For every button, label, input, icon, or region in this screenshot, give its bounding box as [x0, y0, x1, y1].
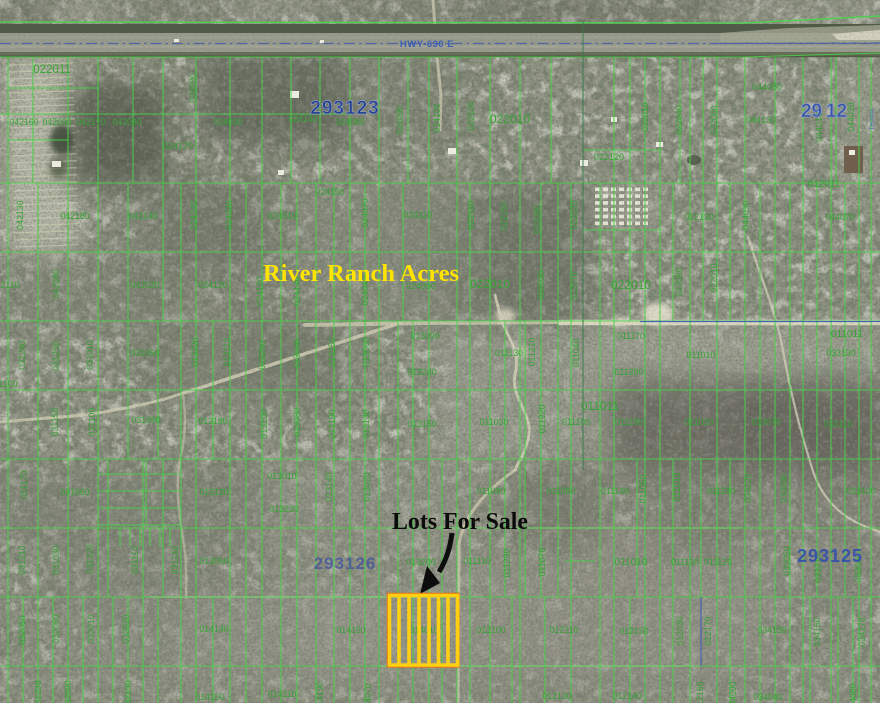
svg-text:011050: 011050: [638, 475, 648, 504]
svg-text:033110: 033110: [824, 419, 853, 429]
svg-text:034090: 034090: [728, 681, 738, 703]
svg-text:031210: 031210: [17, 545, 27, 574]
svg-text:022100: 022100: [466, 101, 476, 130]
svg-text:011010: 011010: [672, 473, 682, 502]
svg-text:HWY-630 E: HWY-630 E: [400, 39, 454, 50]
svg-text:044020: 044020: [846, 102, 856, 131]
svg-text:034040: 034040: [753, 692, 782, 702]
svg-text:032060: 032060: [51, 614, 61, 643]
svg-text:044030: 044030: [741, 200, 751, 229]
svg-text:034080: 034080: [848, 683, 858, 703]
svg-text:011070: 011070: [537, 548, 547, 577]
svg-text:042080: 042080: [51, 269, 61, 298]
svg-text:014100: 014100: [195, 692, 224, 702]
svg-text:022110: 022110: [466, 201, 476, 230]
svg-text:River Ranch Acres: River Ranch Acres: [263, 261, 459, 287]
svg-text:024090: 024090: [395, 105, 405, 134]
svg-text:024100: 024100: [432, 103, 442, 132]
svg-text:024080: 024080: [188, 73, 198, 102]
svg-text:013240: 013240: [407, 367, 436, 377]
svg-text:032090: 032090: [63, 680, 73, 703]
svg-text:014110: 014110: [268, 689, 297, 699]
svg-text:011110: 011110: [463, 556, 491, 566]
svg-text:013090: 013090: [410, 331, 439, 341]
svg-text:044130: 044130: [746, 115, 776, 125]
svg-text:011030: 011030: [480, 417, 509, 427]
svg-text:022150: 022150: [499, 201, 509, 230]
svg-text:014140: 014140: [199, 624, 228, 634]
svg-text:013250: 013250: [327, 337, 337, 366]
svg-text:024120: 024120: [198, 280, 227, 290]
svg-text:012011: 012011: [808, 179, 841, 190]
svg-text:022080: 022080: [674, 267, 684, 296]
svg-text:013080: 013080: [292, 407, 302, 436]
svg-text:011100: 011100: [562, 417, 590, 427]
svg-text:293123: 293123: [310, 98, 379, 119]
svg-text:024070: 024070: [360, 198, 370, 227]
svg-text:022011: 022011: [33, 64, 71, 76]
svg-text:022010: 022010: [611, 278, 651, 292]
svg-text:024020: 024020: [224, 200, 234, 229]
svg-text:032020: 032020: [121, 614, 131, 643]
svg-text:011190: 011190: [707, 486, 735, 496]
svg-text:012030: 012030: [675, 616, 685, 645]
svg-text:033050: 033050: [782, 546, 792, 575]
svg-text:013180: 013180: [198, 416, 227, 426]
svg-text:012130: 012130: [542, 691, 571, 701]
svg-text:033100: 033100: [846, 486, 875, 496]
svg-text:014010: 014010: [409, 625, 438, 635]
svg-text:011140: 011140: [601, 486, 629, 496]
svg-text:033130: 033130: [826, 348, 855, 358]
svg-text:011011: 011011: [581, 399, 620, 413]
svg-text:011080: 011080: [547, 486, 576, 496]
svg-text:042030: 042030: [112, 117, 141, 127]
svg-text:Lots For Sale: Lots For Sale: [392, 509, 528, 535]
svg-text:022120: 022120: [594, 152, 624, 162]
svg-text:29 12: 29 12: [801, 101, 847, 122]
svg-text:033090: 033090: [779, 473, 789, 502]
svg-text:012140: 012140: [612, 691, 641, 701]
svg-text:013230: 013230: [269, 504, 298, 514]
svg-text:013050: 013050: [199, 556, 228, 566]
svg-text:031010: 031010: [85, 340, 95, 369]
svg-text:011220: 011220: [537, 405, 547, 434]
svg-text:011130: 011130: [495, 348, 523, 358]
svg-text:013200: 013200: [406, 557, 435, 567]
svg-text:011210: 011210: [527, 338, 537, 367]
svg-text:024030: 024030: [213, 117, 242, 127]
svg-text:013120: 013120: [199, 487, 228, 497]
svg-text:014190: 014190: [315, 681, 325, 703]
svg-text:032010: 032010: [86, 614, 96, 643]
svg-text:012110: 012110: [550, 625, 579, 635]
svg-text:034160: 034160: [812, 617, 822, 646]
svg-text:024110: 024110: [404, 210, 433, 220]
svg-text:013060: 013060: [361, 337, 371, 366]
svg-text:013020: 013020: [362, 472, 372, 501]
svg-text:012160: 012160: [695, 681, 705, 703]
svg-text:031170: 031170: [19, 471, 29, 500]
svg-text:022030: 022030: [536, 270, 546, 299]
svg-text:031030: 031030: [51, 545, 61, 574]
svg-text:011040: 011040: [571, 339, 581, 368]
svg-text:031110: 031110: [130, 546, 140, 574]
svg-text:013260: 013260: [257, 340, 267, 369]
svg-text:013220: 013220: [190, 337, 200, 366]
svg-text:031150: 031150: [50, 408, 60, 437]
svg-text:022010: 022010: [640, 102, 650, 131]
svg-text:032050: 032050: [17, 615, 27, 644]
svg-text:034170: 034170: [857, 617, 867, 646]
svg-text:042170: 042170: [76, 117, 105, 127]
svg-text:011230: 011230: [502, 549, 512, 578]
svg-text:011011: 011011: [831, 329, 863, 340]
svg-text:013110: 013110: [222, 338, 232, 367]
svg-text:293125: 293125: [797, 546, 863, 566]
svg-text:024010: 024010: [267, 211, 296, 221]
svg-text:034150: 034150: [757, 625, 786, 635]
svg-text:011170: 011170: [617, 331, 645, 341]
svg-text:022010: 022010: [470, 277, 510, 291]
svg-text:013190: 013190: [327, 409, 337, 438]
svg-text:011010: 011010: [687, 350, 716, 360]
svg-text:042130: 042130: [15, 200, 25, 229]
svg-text:031100: 031100: [87, 408, 97, 437]
svg-text:011180: 011180: [615, 417, 643, 427]
svg-text:293126: 293126: [314, 554, 377, 573]
svg-text:024130: 024130: [315, 187, 344, 197]
svg-text:044070: 044070: [825, 212, 854, 222]
svg-text:042020: 042020: [130, 280, 159, 290]
svg-text:032130: 032130: [123, 680, 133, 703]
svg-text:022010: 022010: [490, 112, 530, 126]
svg-text:012150: 012150: [619, 626, 648, 636]
svg-text:011120: 011120: [704, 557, 732, 567]
svg-text:024040: 024040: [189, 200, 199, 229]
svg-text:013010: 013010: [267, 471, 296, 481]
svg-text:011090: 011090: [477, 486, 506, 496]
svg-text:011200: 011200: [615, 367, 644, 377]
svg-text:013130: 013130: [361, 409, 371, 438]
svg-text:031240: 031240: [17, 340, 27, 369]
svg-text:042090: 042090: [42, 117, 71, 127]
svg-text:014150: 014150: [336, 625, 365, 635]
svg-text:011130: 011130: [671, 557, 699, 567]
svg-text:012100: 012100: [476, 625, 505, 635]
svg-text:022130: 022130: [684, 212, 713, 222]
svg-text:1100: 1100: [0, 379, 18, 389]
svg-text:031220: 031220: [85, 544, 95, 573]
svg-text:024170: 024170: [163, 141, 193, 151]
svg-text:031250: 031250: [51, 341, 61, 370]
svg-text:013150: 013150: [407, 419, 436, 429]
svg-text:022020: 022020: [569, 200, 579, 229]
svg-text:022040: 022040: [674, 105, 684, 134]
svg-text:031090: 031090: [131, 415, 160, 425]
svg-text:013040: 013040: [292, 339, 302, 368]
svg-text:011010: 011010: [615, 557, 648, 568]
svg-text:022070: 022070: [569, 271, 579, 300]
svg-text:031230: 031230: [33, 680, 43, 703]
svg-text:022010: 022010: [709, 263, 719, 292]
svg-text:033220: 033220: [743, 473, 753, 502]
svg-text:2110: 2110: [1, 280, 20, 290]
svg-text:013140: 013140: [324, 472, 334, 501]
svg-text:013100: 013100: [259, 409, 269, 438]
svg-text:042180: 042180: [60, 211, 89, 221]
svg-text:042140: 042140: [128, 211, 157, 221]
svg-text:014070: 014070: [363, 683, 373, 703]
svg-text:044080: 044080: [752, 82, 782, 92]
svg-text:022060: 022060: [709, 105, 719, 134]
svg-text:042160: 042160: [9, 117, 38, 127]
svg-text:033070: 033070: [751, 417, 780, 427]
svg-text:031060: 031060: [60, 487, 89, 497]
svg-text:011020: 011020: [685, 417, 714, 427]
svg-text:031050: 031050: [130, 348, 159, 358]
svg-text:022090: 022090: [532, 204, 542, 233]
svg-text:Teorro: Teorro: [867, 109, 876, 130]
svg-text:031140: 031140: [170, 546, 180, 575]
svg-text:012170: 012170: [703, 616, 713, 645]
